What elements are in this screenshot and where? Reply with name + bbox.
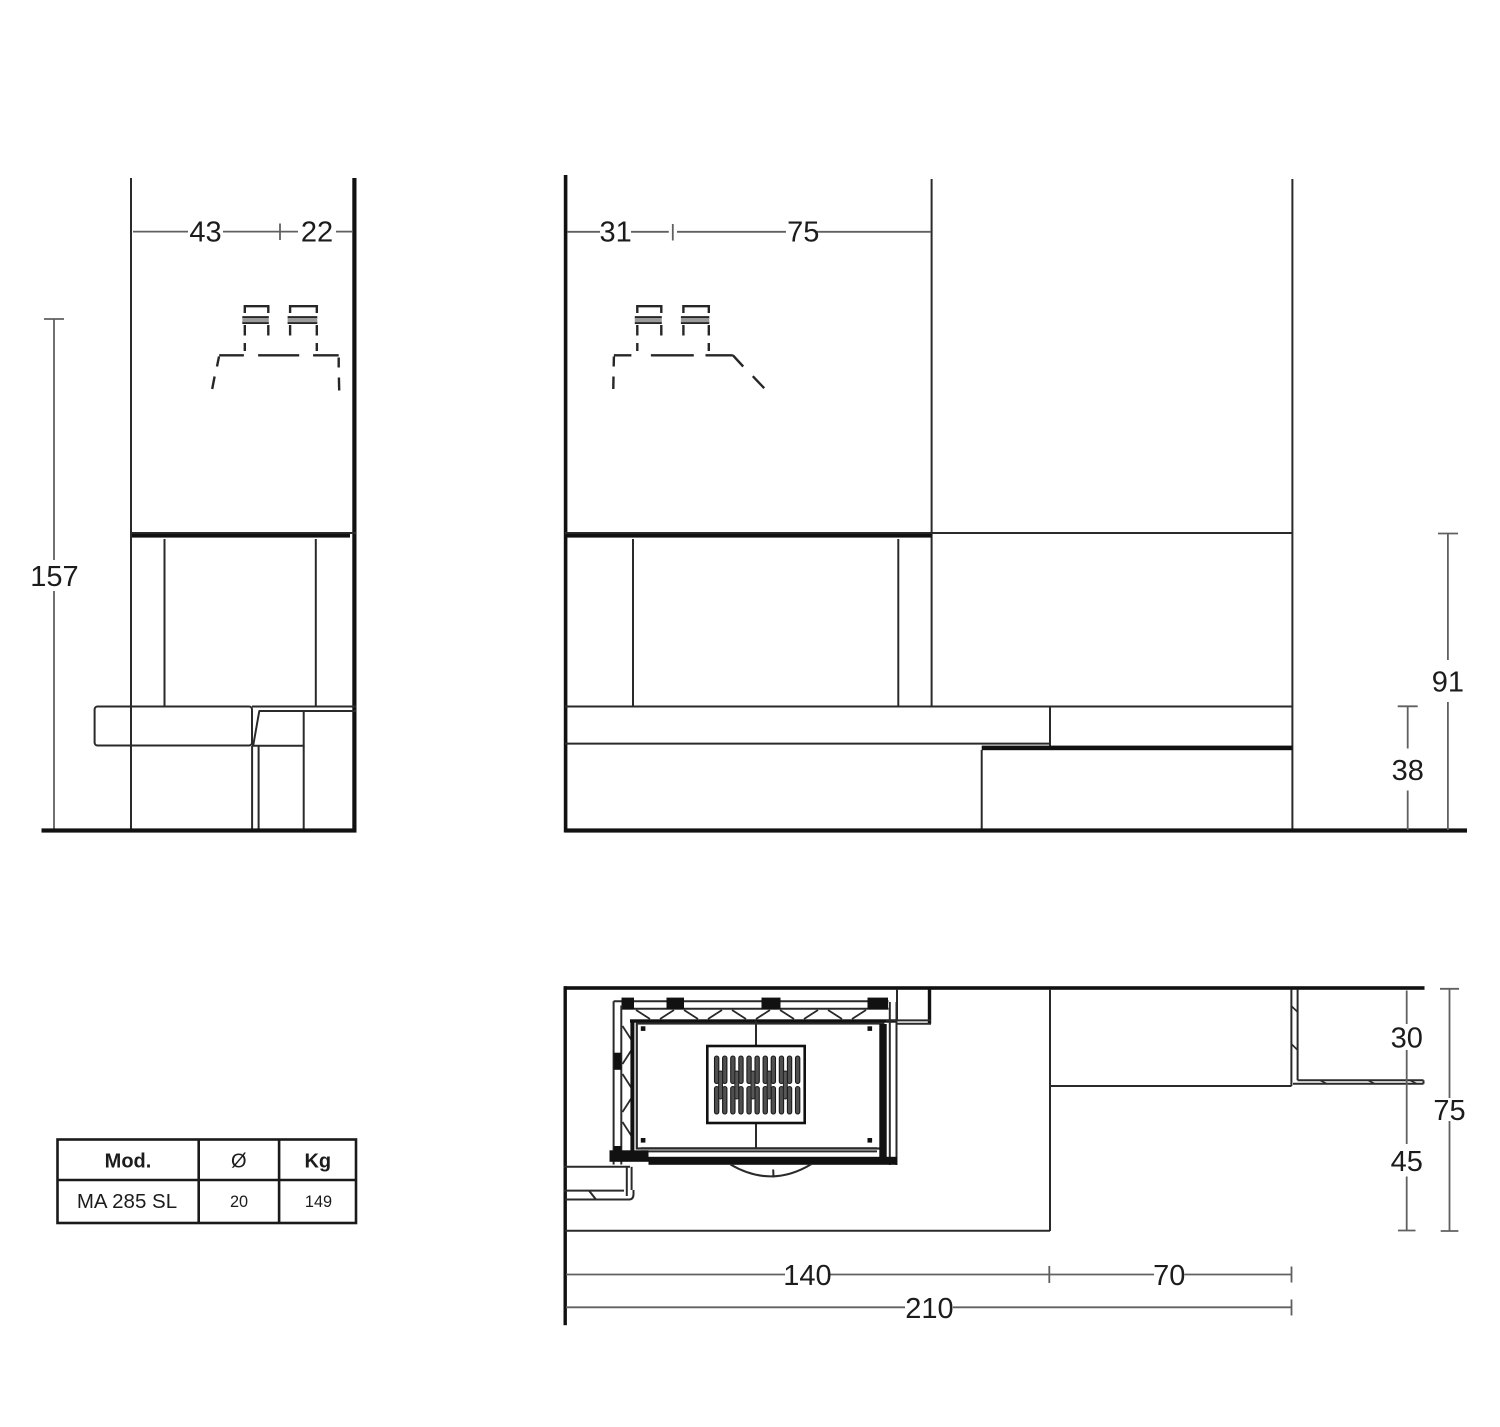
svg-text:Ø: Ø xyxy=(231,1151,247,1173)
svg-text:149: 149 xyxy=(305,1193,332,1211)
svg-text:91: 91 xyxy=(1432,667,1464,699)
svg-text:45: 45 xyxy=(1391,1146,1423,1178)
svg-text:38: 38 xyxy=(1392,755,1424,787)
svg-text:140: 140 xyxy=(783,1260,831,1292)
svg-text:MA 285 SL: MA 285 SL xyxy=(77,1190,177,1213)
svg-text:20: 20 xyxy=(230,1193,248,1211)
svg-text:75: 75 xyxy=(1433,1095,1465,1127)
svg-text:31: 31 xyxy=(599,217,631,249)
svg-text:157: 157 xyxy=(30,561,78,593)
svg-text:30: 30 xyxy=(1391,1022,1423,1054)
svg-text:Mod.: Mod. xyxy=(105,1151,152,1173)
svg-text:70: 70 xyxy=(1153,1260,1185,1292)
svg-text:75: 75 xyxy=(787,217,819,249)
svg-text:Kg: Kg xyxy=(304,1151,331,1173)
svg-text:43: 43 xyxy=(189,217,221,249)
svg-text:22: 22 xyxy=(301,217,333,249)
svg-text:210: 210 xyxy=(905,1293,953,1325)
